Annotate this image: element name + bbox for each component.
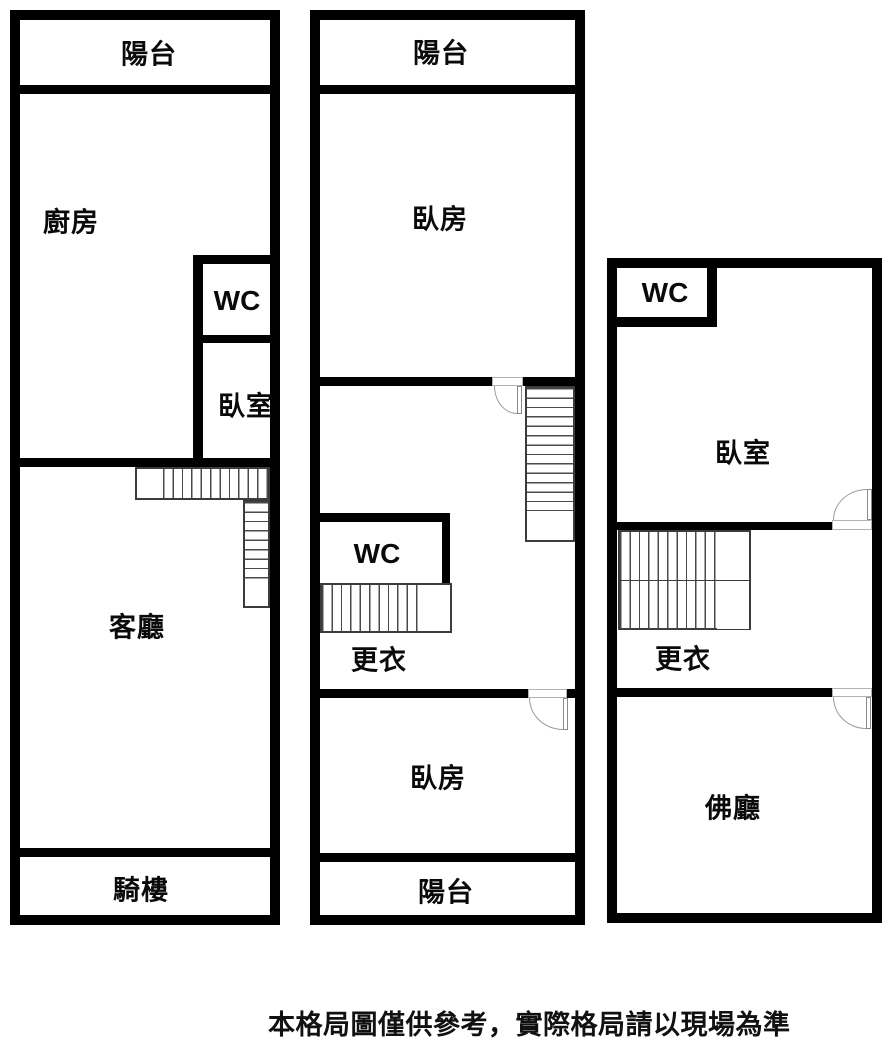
wall-bedroom-hall-right [523, 377, 575, 386]
wall-bedroom-dressing-divider [617, 522, 833, 530]
door-threshold [492, 377, 523, 386]
stair-landing [527, 511, 573, 540]
stair-treads [322, 585, 421, 631]
room-label-bedroom: 臥室 [218, 385, 274, 424]
room-label-balcony-top: 陽台 [413, 32, 469, 71]
wall-dressing-buddha-divider [617, 688, 833, 697]
stairs-double-run [618, 530, 751, 630]
stair-run-lower [620, 581, 749, 629]
room-label-dressing: 更衣 [351, 639, 407, 678]
floor-plan-3: WC 臥室 更衣 佛廳 [607, 258, 882, 923]
door-swing-icon [833, 489, 867, 520]
room-label-buddha-hall: 佛廳 [705, 787, 761, 826]
room-label-bedroom-top: 臥房 [412, 198, 468, 237]
stairs-horizontal-run [135, 467, 270, 500]
wall-wc-right [707, 268, 717, 327]
stair-treads [163, 469, 268, 498]
wall-dressing-bedroom-left [320, 689, 528, 698]
wall-kitchen-living-divider [20, 458, 270, 467]
wall-kitchen-right [193, 255, 203, 467]
room-label-balcony-bottom: 陽台 [418, 871, 474, 910]
floor-plan-canvas: 陽台 廚房 WC 臥室 客廳 騎樓 陽台 臥房 WC 更 [0, 0, 888, 1045]
wall-balcony-divider [20, 85, 270, 94]
stairs-horizontal-run [320, 583, 452, 633]
room-label-bedroom-bottom: 臥房 [410, 757, 466, 796]
room-label-balcony: 陽台 [121, 33, 177, 72]
floor-plan-1: 陽台 廚房 WC 臥室 客廳 騎樓 [10, 10, 280, 925]
room-label-kitchen: 廚房 [43, 201, 99, 240]
stair-run-upper [620, 532, 749, 581]
room-label-bedroom: 臥室 [715, 432, 771, 471]
wall-wc-top [320, 513, 450, 522]
door-panel [866, 697, 871, 729]
door-threshold [832, 520, 872, 530]
door-panel [563, 698, 568, 730]
stair-treads [527, 388, 573, 511]
wall-bedroom-hall-left [320, 377, 492, 386]
stair-treads [245, 502, 268, 584]
stair-landing [137, 469, 163, 498]
room-label-wc: WC [642, 277, 689, 309]
wall-wc-top [193, 255, 270, 264]
door-swing-icon [833, 697, 866, 729]
disclaimer-text: 本格局圖僅供參考，實際格局請以現場為準 [268, 1003, 791, 1042]
floor-plan-2: 陽台 臥房 WC 更衣 臥房 陽台 [310, 10, 585, 925]
room-label-dressing: 更衣 [655, 638, 711, 677]
wall-arcade-divider [20, 848, 270, 857]
door-panel [867, 489, 872, 520]
stairs-vertical-run [525, 386, 575, 542]
wall-wc-bedroom-divider [202, 335, 270, 343]
stair-landing [421, 585, 450, 631]
room-label-living-room: 客廳 [109, 606, 165, 645]
stair-landing [717, 532, 749, 580]
stair-treads [620, 532, 717, 580]
wall-balcony-top-divider [320, 85, 575, 94]
stair-landing [245, 584, 268, 606]
door-threshold [528, 689, 567, 698]
stair-treads [620, 581, 717, 629]
wall-wc-right [442, 513, 450, 583]
stair-landing [717, 581, 749, 629]
wall-balcony-bottom-divider [320, 853, 575, 862]
room-label-arcade: 騎樓 [113, 869, 169, 908]
door-swing-icon [529, 698, 563, 730]
wall-dressing-bedroom-right [567, 689, 575, 698]
door-swing-icon [494, 386, 517, 414]
door-panel [517, 386, 522, 414]
room-label-wc: WC [214, 285, 261, 317]
room-label-wc: WC [354, 538, 401, 570]
door-threshold [832, 688, 872, 697]
stairs-vertical-run [243, 500, 270, 608]
wall-wc-bottom [617, 317, 717, 327]
